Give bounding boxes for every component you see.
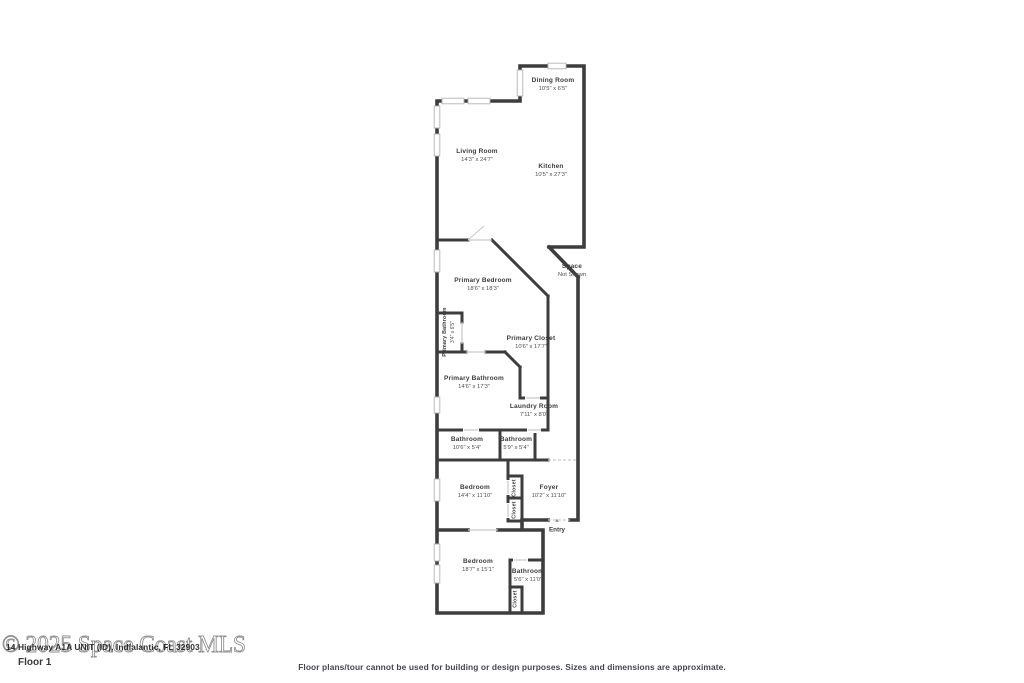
- entry-label: Entry: [549, 527, 565, 534]
- disclaimer-text: Floor plans/tour cannot be used for buil…: [0, 662, 1024, 672]
- floorplan-drawing: [0, 0, 1024, 683]
- door-gaps: [463, 395, 541, 563]
- entry-arrow-icon: ▲: [554, 518, 560, 524]
- floorplan-page: Dining Room10'5" x 6'5"Living Room14'3" …: [0, 0, 1024, 683]
- property-address: 14 Highway A1A UNIT (ID), Indialantic, F…: [6, 642, 200, 652]
- interior-walls: [437, 240, 548, 613]
- windows: [434, 63, 566, 583]
